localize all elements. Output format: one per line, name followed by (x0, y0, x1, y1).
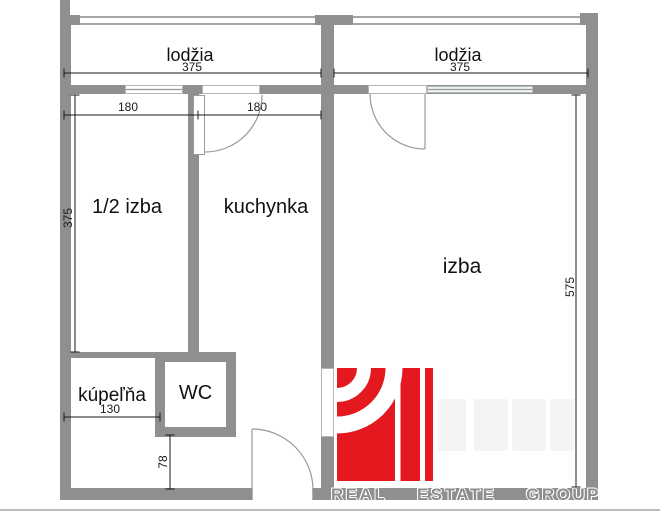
plan-linework (0, 0, 660, 515)
watermark-tagline: REAL ESTATE GROUP (331, 485, 601, 505)
floor-plan: lodžia lodžia 1/2 izba kuchynka izba kúp… (0, 0, 660, 515)
tagline-word-group: GROUP (526, 485, 601, 505)
tagline-word-estate: ESTATE (417, 485, 497, 505)
real-estate-logo (337, 368, 433, 481)
tagline-word-real: REAL (331, 485, 387, 505)
entrance-door-arc (252, 429, 313, 490)
room-balcony-door-arc (370, 94, 425, 149)
kitchen-door-arc (205, 95, 262, 152)
